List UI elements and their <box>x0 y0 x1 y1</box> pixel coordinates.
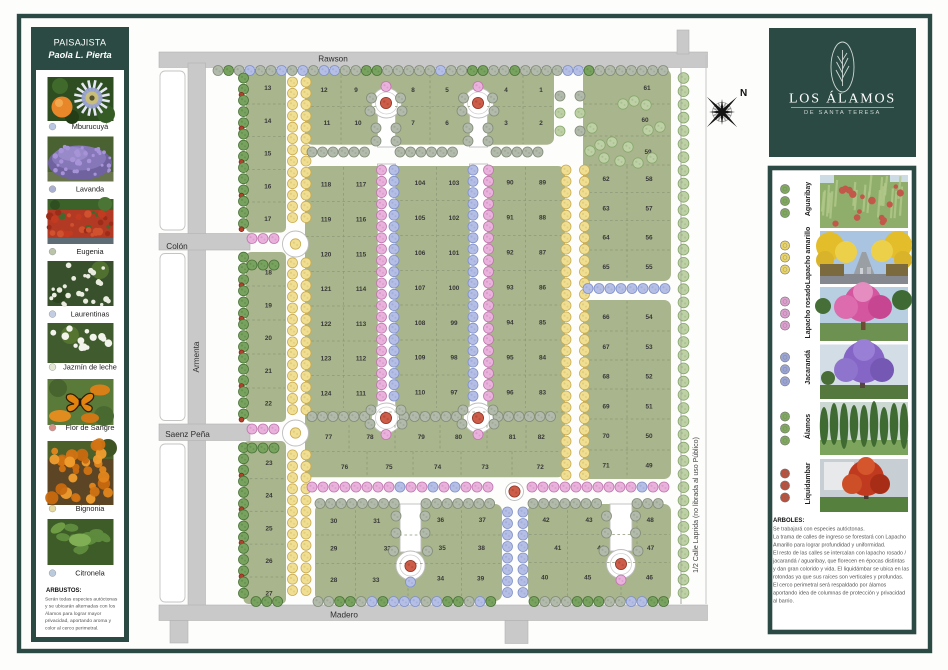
svg-text:47: 47 <box>647 545 655 552</box>
svg-text:23: 23 <box>265 460 273 467</box>
svg-text:76: 76 <box>341 464 349 471</box>
svg-text:39: 39 <box>477 576 485 583</box>
svg-text:118: 118 <box>321 182 332 189</box>
svg-text:29: 29 <box>330 546 338 553</box>
svg-text:43: 43 <box>585 517 593 524</box>
svg-text:21: 21 <box>265 368 273 375</box>
svg-text:77: 77 <box>325 434 333 441</box>
svg-text:112: 112 <box>356 356 367 363</box>
svg-text:al barrio.: al barrio. <box>773 599 794 605</box>
svg-text:87: 87 <box>539 250 547 257</box>
svg-text:96: 96 <box>506 390 514 397</box>
svg-text:56: 56 <box>645 235 653 242</box>
svg-text:75: 75 <box>385 464 393 471</box>
svg-text:38: 38 <box>478 545 486 552</box>
svg-text:102: 102 <box>449 215 460 222</box>
svg-text:Jacarandá: Jacarandá <box>805 350 812 385</box>
svg-text:3: 3 <box>504 120 508 127</box>
svg-text:Se trabajará con especies autó: Se trabajará con especies autóctonas. <box>773 527 865 533</box>
svg-text:51: 51 <box>645 403 653 410</box>
svg-text:19: 19 <box>265 302 273 309</box>
svg-text:113: 113 <box>356 321 367 328</box>
svg-text:88: 88 <box>539 215 547 222</box>
svg-text:24: 24 <box>265 493 273 500</box>
svg-text:40: 40 <box>541 575 549 582</box>
svg-text:1: 1 <box>539 87 543 94</box>
svg-text:116: 116 <box>356 217 367 224</box>
svg-text:35: 35 <box>439 545 447 552</box>
svg-text:60: 60 <box>641 117 649 124</box>
svg-text:86: 86 <box>539 285 547 292</box>
svg-text:52: 52 <box>645 374 653 381</box>
svg-text:34: 34 <box>437 576 445 583</box>
svg-text:41: 41 <box>554 545 562 552</box>
svg-text:65: 65 <box>602 264 610 271</box>
svg-text:70: 70 <box>602 433 610 440</box>
svg-text:color al cerco perimetral.: color al cerco perimetral. <box>45 625 99 631</box>
svg-text:8: 8 <box>411 87 415 94</box>
svg-text:Lapacho rosado: Lapacho rosado <box>805 284 812 338</box>
svg-text:103: 103 <box>449 180 460 187</box>
svg-text:100: 100 <box>449 285 460 292</box>
svg-text:53: 53 <box>645 344 653 351</box>
svg-text:Álamos: Álamos <box>803 414 812 439</box>
svg-text:Paola L. Pierta: Paola L. Pierta <box>48 50 111 60</box>
svg-text:114: 114 <box>356 286 367 293</box>
svg-text:69: 69 <box>602 403 610 410</box>
svg-text:101: 101 <box>449 250 460 257</box>
svg-text:Amarillo para lograr profundid: Amarillo para lograr profundidad y unifo… <box>773 543 885 549</box>
svg-text:85: 85 <box>539 320 547 327</box>
svg-text:93: 93 <box>506 285 514 292</box>
svg-text:71: 71 <box>602 463 610 470</box>
svg-text:Lapacho amarillo: Lapacho amarillo <box>805 227 812 285</box>
svg-text:91: 91 <box>506 215 514 222</box>
svg-text:Flor de Sangre: Flor de Sangre <box>66 423 115 432</box>
svg-text:6: 6 <box>445 120 449 127</box>
svg-text:55: 55 <box>645 264 653 271</box>
svg-text:y dan gran colorido y vida. El: y dan gran colorido y vida. El liquidámb… <box>773 567 909 573</box>
svg-text:80: 80 <box>455 434 463 441</box>
svg-text:72: 72 <box>537 464 545 471</box>
svg-text:122: 122 <box>321 321 332 328</box>
svg-text:48: 48 <box>647 517 655 524</box>
svg-text:37: 37 <box>479 517 487 524</box>
svg-text:12: 12 <box>320 87 328 94</box>
svg-text:109: 109 <box>415 355 426 362</box>
svg-text:46: 46 <box>646 575 654 582</box>
svg-text:11: 11 <box>324 120 331 127</box>
svg-text:Serán todas especies autóctona: Serán todas especies autóctonas <box>45 597 118 603</box>
svg-text:50: 50 <box>645 433 653 440</box>
svg-text:83: 83 <box>539 390 547 397</box>
svg-text:115: 115 <box>356 251 367 258</box>
svg-text:9: 9 <box>354 87 358 94</box>
svg-text:1/2 Calle Laprida (no librada: 1/2 Calle Laprida (no librada al uso Púb… <box>693 437 700 573</box>
svg-text:jacarandá / aguaribay, que flo: jacarandá / aguaribay, que florecen en é… <box>772 559 905 565</box>
svg-text:124: 124 <box>321 391 332 398</box>
svg-text:36: 36 <box>437 517 445 524</box>
svg-text:95: 95 <box>506 355 514 362</box>
svg-text:81: 81 <box>509 434 517 441</box>
svg-text:Bignonia: Bignonia <box>76 504 106 513</box>
svg-text:82: 82 <box>538 434 546 441</box>
svg-text:Jazmín de leche: Jazmín de leche <box>63 362 117 371</box>
svg-text:13: 13 <box>264 85 272 92</box>
svg-text:68: 68 <box>602 374 610 381</box>
svg-text:PAISAJISTA: PAISAJISTA <box>54 38 107 48</box>
svg-text:33: 33 <box>372 577 380 584</box>
svg-text:Rawson: Rawson <box>318 54 348 63</box>
svg-text:90: 90 <box>506 180 514 187</box>
svg-text:111: 111 <box>356 391 366 398</box>
svg-text:5: 5 <box>445 87 449 94</box>
svg-text:Citronela: Citronela <box>75 568 105 577</box>
svg-text:121: 121 <box>321 286 332 293</box>
svg-text:16: 16 <box>264 183 272 190</box>
svg-text:20: 20 <box>265 335 273 342</box>
svg-text:123: 123 <box>321 356 332 363</box>
svg-text:64: 64 <box>602 235 610 242</box>
svg-text:Armenta: Armenta <box>192 341 201 372</box>
svg-text:31: 31 <box>373 518 381 525</box>
svg-text:84: 84 <box>539 355 547 362</box>
svg-text:42: 42 <box>542 517 550 524</box>
svg-text:67: 67 <box>602 344 610 351</box>
svg-text:79: 79 <box>418 434 426 441</box>
svg-text:49: 49 <box>645 463 653 470</box>
svg-text:107: 107 <box>415 285 426 292</box>
svg-text:17: 17 <box>264 216 272 223</box>
svg-text:45: 45 <box>584 575 592 582</box>
svg-text:rotondas ya que sus raíces son: rotondas ya que sus raíces son verticale… <box>773 575 903 581</box>
svg-text:10: 10 <box>354 120 362 127</box>
svg-text:ARBUSTOS:: ARBUSTOS: <box>46 588 82 594</box>
svg-text:98: 98 <box>450 355 458 362</box>
svg-text:Colón: Colón <box>166 242 188 251</box>
svg-text:Eugenia: Eugenia <box>76 247 104 256</box>
svg-text:28: 28 <box>330 577 338 584</box>
svg-text:62: 62 <box>602 176 610 183</box>
svg-text:N: N <box>740 88 747 99</box>
svg-text:25: 25 <box>265 525 273 532</box>
svg-text:18: 18 <box>265 270 273 277</box>
svg-text:78: 78 <box>366 434 374 441</box>
svg-text:97: 97 <box>450 390 458 397</box>
svg-text:4: 4 <box>504 87 508 94</box>
svg-text:El cerco perimetral será respa: El cerco perimetral será respaldado por … <box>773 583 887 589</box>
svg-text:Aguaribay: Aguaribay <box>805 182 812 216</box>
svg-text:Laurentinas: Laurentinas <box>71 309 110 318</box>
svg-text:El resto de las calles se inte: El resto de las calles se intercalan con… <box>773 551 907 557</box>
svg-text:Álamos para lograr mayor: Álamos para lograr mayor <box>45 610 102 617</box>
svg-text:Mburucuyá: Mburucuyá <box>72 122 109 131</box>
svg-text:ARBOLES:: ARBOLES: <box>773 518 804 524</box>
svg-text:99: 99 <box>450 320 458 327</box>
svg-text:La trama de calles de ingreso: La trama de calles de ingreso se foresta… <box>773 535 906 541</box>
svg-text:117: 117 <box>356 182 367 189</box>
svg-text:aportando idea de columnas de: aportando idea de columnas de protección… <box>773 591 905 597</box>
svg-text:14: 14 <box>264 118 272 125</box>
svg-text:74: 74 <box>434 464 442 471</box>
svg-text:Saenz Peña: Saenz Peña <box>165 430 210 439</box>
svg-text:63: 63 <box>602 205 610 212</box>
svg-text:Lavanda: Lavanda <box>76 184 105 193</box>
svg-text:26: 26 <box>265 558 273 565</box>
svg-text:Madero: Madero <box>330 611 358 620</box>
svg-text:119: 119 <box>321 217 332 224</box>
svg-text:61: 61 <box>643 85 651 92</box>
svg-text:110: 110 <box>415 390 426 397</box>
svg-text:92: 92 <box>506 250 514 257</box>
svg-text:120: 120 <box>321 251 332 258</box>
svg-text:y se ubicarán alternadas con l: y se ubicarán alternadas con los <box>45 604 116 610</box>
svg-text:7: 7 <box>411 120 415 127</box>
svg-text:LOS ÁLAMOS: LOS ÁLAMOS <box>789 90 896 107</box>
svg-text:108: 108 <box>415 320 426 327</box>
svg-text:106: 106 <box>415 250 426 257</box>
svg-text:104: 104 <box>415 180 426 187</box>
svg-text:Liquidambar: Liquidambar <box>805 462 812 504</box>
svg-text:66: 66 <box>602 314 610 321</box>
svg-text:89: 89 <box>539 180 547 187</box>
svg-text:105: 105 <box>415 215 426 222</box>
svg-text:54: 54 <box>645 314 653 321</box>
svg-text:58: 58 <box>645 176 653 183</box>
svg-text:30: 30 <box>330 518 338 525</box>
svg-text:privacidad, aportando aroma y: privacidad, aportando aroma y <box>45 618 112 624</box>
svg-text:57: 57 <box>645 205 653 212</box>
svg-text:15: 15 <box>264 151 272 158</box>
svg-text:DE SANTA TERESA: DE SANTA TERESA <box>804 110 881 116</box>
svg-text:2: 2 <box>539 120 543 127</box>
svg-text:73: 73 <box>482 464 490 471</box>
svg-text:94: 94 <box>506 320 514 327</box>
svg-text:22: 22 <box>265 401 273 408</box>
